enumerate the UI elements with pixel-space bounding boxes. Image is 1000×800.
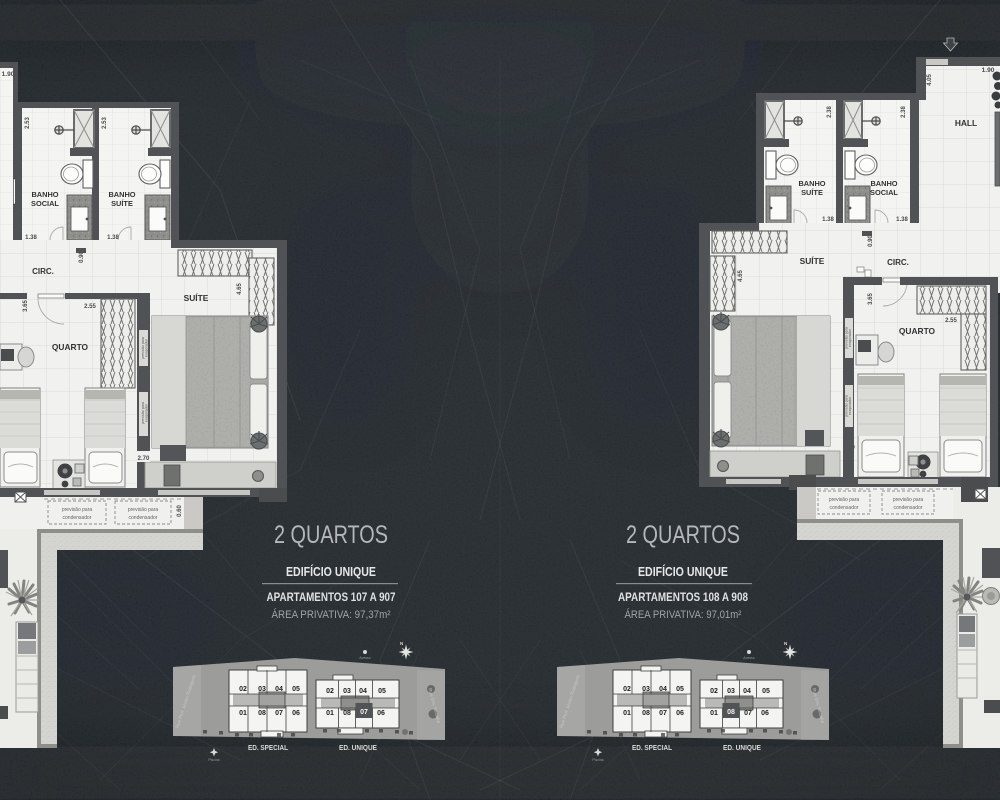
svg-text:2.53: 2.53 [25,117,31,129]
svg-text:BANHO: BANHO [31,190,58,199]
svg-text:1.90: 1.90 [2,71,15,78]
svg-text:3.65: 3.65 [868,293,874,305]
svg-text:2 QUARTOS: 2 QUARTOS [274,521,388,549]
svg-text:BANHO: BANHO [798,179,825,188]
svg-text:2.55: 2.55 [84,304,96,310]
svg-text:condensador: condensador [830,505,859,511]
svg-text:SUÍTE: SUÍTE [801,188,823,197]
svg-text:previsão para: previsão para [829,497,860,503]
svg-text:evaporador: evaporador [848,328,852,347]
svg-text:2.38: 2.38 [901,106,907,118]
svg-text:4.65: 4.65 [738,270,744,282]
svg-text:QUARTO: QUARTO [899,326,936,336]
svg-text:QUARTO: QUARTO [52,342,89,352]
svg-text:08: 08 [727,709,735,716]
svg-text:condensador: condensador [129,515,158,521]
svg-text:condensador: condensador [894,505,923,511]
svg-text:2.70: 2.70 [138,456,150,462]
svg-text:SUÍTE: SUÍTE [184,292,209,303]
svg-text:previsão para: previsão para [128,507,159,513]
svg-text:EDIFÍCIO UNIQUE: EDIFÍCIO UNIQUE [638,564,728,579]
svg-text:previsão para: previsão para [62,507,93,513]
svg-text:CIRC.: CIRC. [887,258,909,267]
svg-text:07: 07 [360,709,368,716]
svg-text:3.65: 3.65 [23,300,29,312]
svg-text:ÁREA PRIVATIVA: 97,01m²: ÁREA PRIVATIVA: 97,01m² [625,608,742,621]
svg-text:APARTAMENTOS 107 A 907: APARTAMENTOS 107 A 907 [267,592,396,604]
svg-text:2 QUARTOS: 2 QUARTOS [626,521,740,549]
svg-text:4.65: 4.65 [237,283,243,295]
svg-text:evaporador: evaporador [848,396,852,415]
svg-text:evaporador: evaporador [145,403,149,422]
svg-text:0.90: 0.90 [868,235,874,247]
svg-text:SUÍTE: SUÍTE [800,255,825,266]
svg-text:EDIFÍCIO UNIQUE: EDIFÍCIO UNIQUE [286,564,376,579]
svg-text:CIRC.: CIRC. [32,267,54,276]
svg-text:APARTAMENTOS 108 A 908: APARTAMENTOS 108 A 908 [618,592,749,604]
svg-text:SOCIAL: SOCIAL [870,188,898,197]
svg-text:0.60: 0.60 [177,505,183,517]
svg-text:1.38: 1.38 [822,217,834,223]
svg-text:BANHO: BANHO [108,190,135,199]
svg-text:condensador: condensador [63,515,92,521]
svg-text:evaporador: evaporador [145,338,149,357]
svg-text:1.90: 1.90 [982,67,995,74]
svg-text:2.38: 2.38 [827,106,833,118]
svg-text:SOCIAL: SOCIAL [31,199,59,208]
svg-text:4.05: 4.05 [927,74,933,86]
svg-text:2.53: 2.53 [102,117,108,129]
svg-text:SUÍTE: SUÍTE [111,199,133,208]
svg-text:1.38: 1.38 [896,217,908,223]
svg-text:BANHO: BANHO [870,179,897,188]
svg-text:HALL: HALL [955,118,977,128]
svg-text:ÁREA PRIVATIVA: 97,37m²: ÁREA PRIVATIVA: 97,37m² [272,608,391,621]
svg-text:2.55: 2.55 [945,318,957,324]
svg-text:previsão para: previsão para [893,497,924,503]
